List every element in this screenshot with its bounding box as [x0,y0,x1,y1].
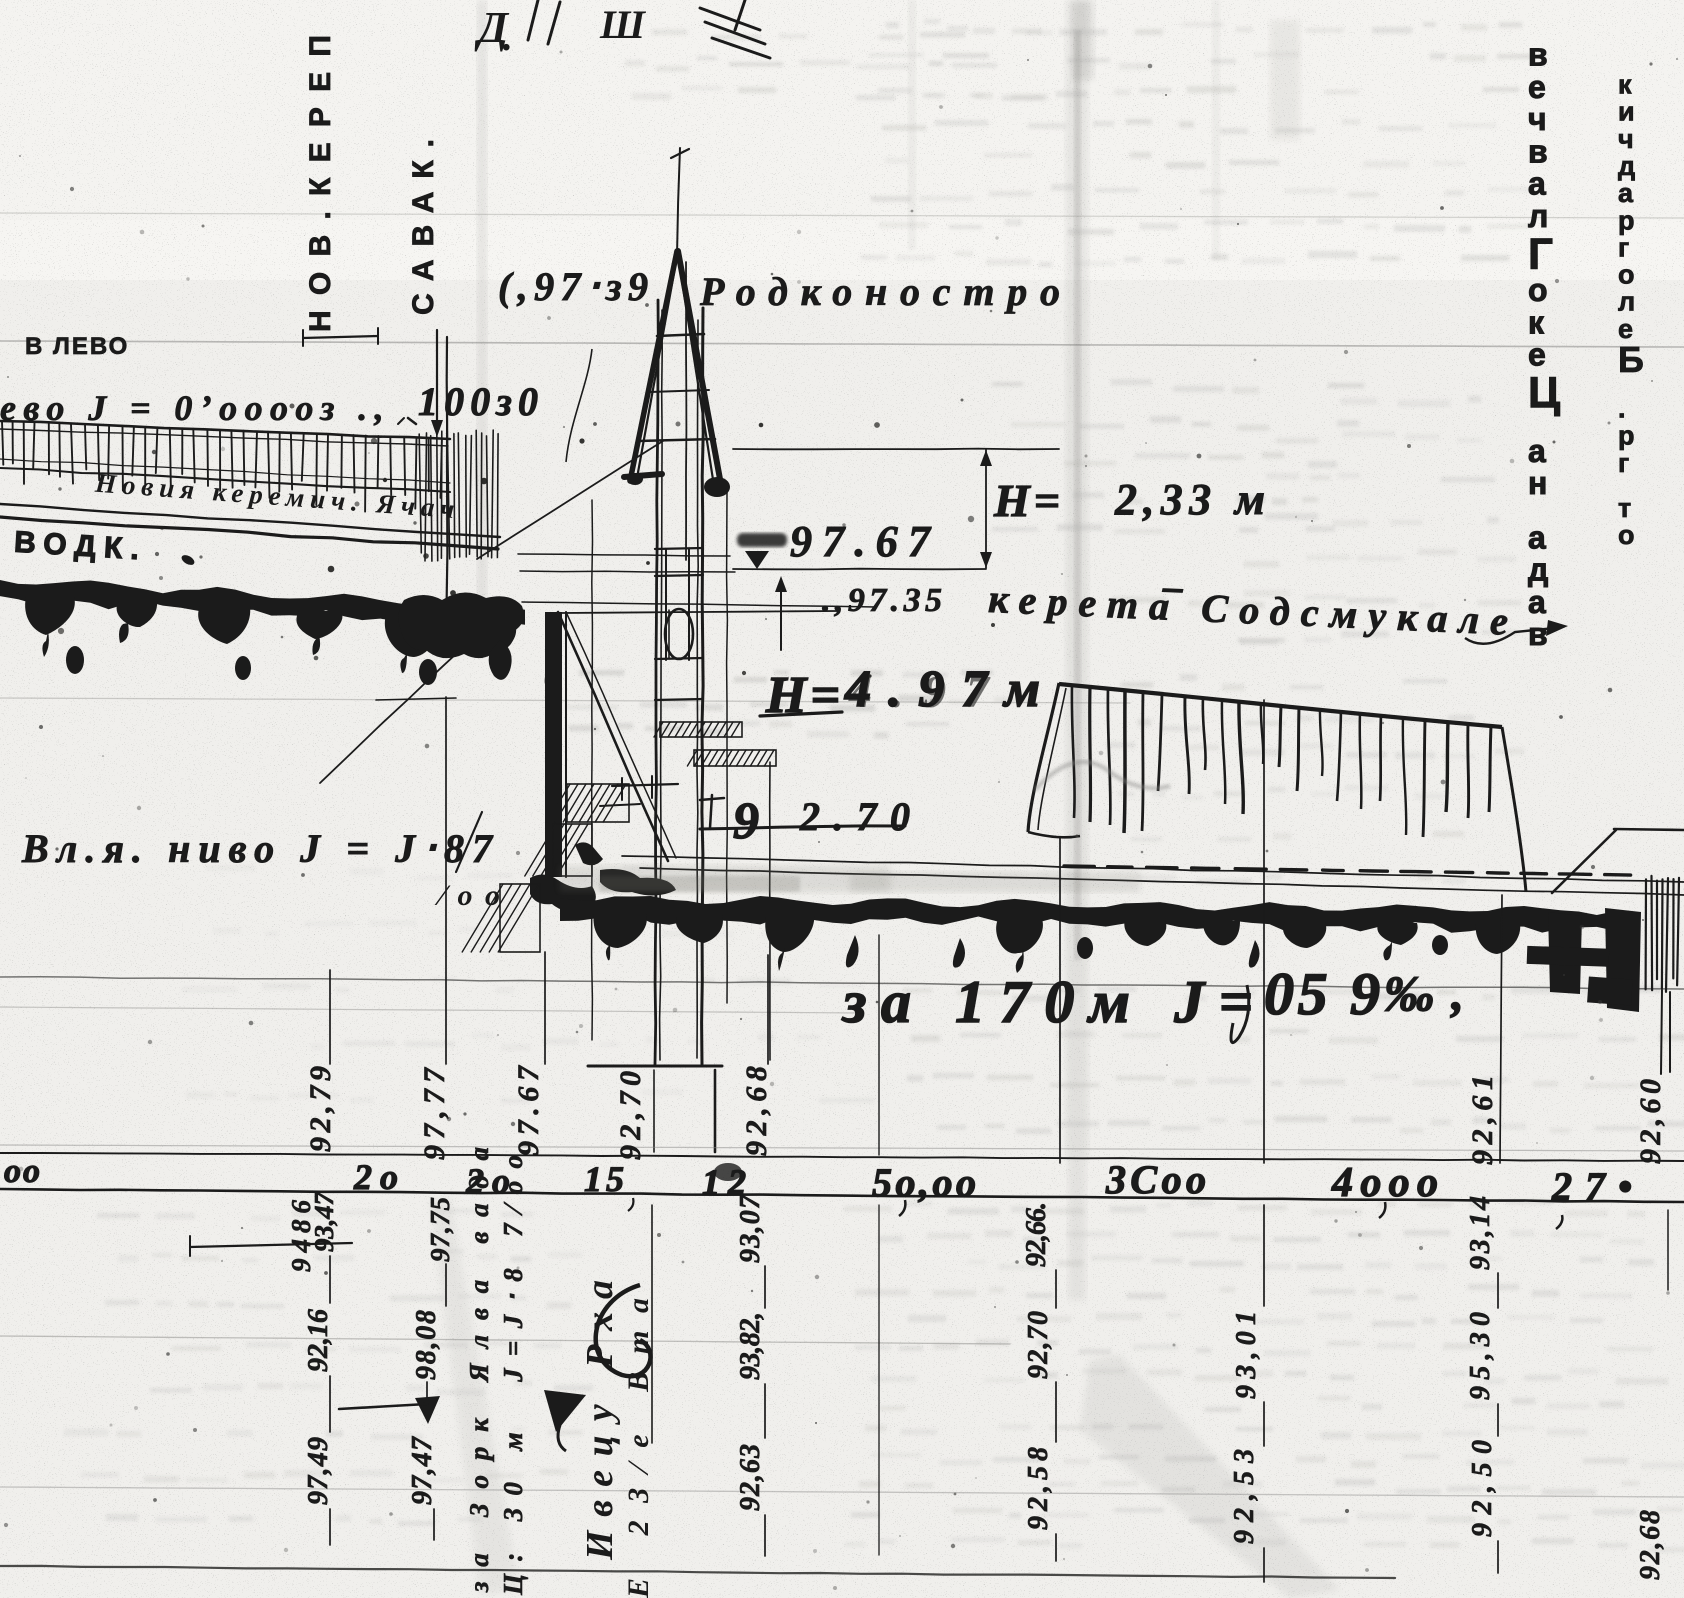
svg-text:93,82,: 93,82, [735,1312,766,1380]
svg-text:в: в [1528,133,1548,169]
svg-text:92,68: 92,68 [740,1066,773,1156]
svg-text:Ц: Ц [1528,368,1560,417]
svg-text:92,70: 92,70 [1023,1311,1054,1379]
svg-text:д: д [1618,151,1635,181]
svg-text:97,75: 97,75 [425,1197,455,1262]
svg-text:2,33 м: 2,33 м [1114,475,1265,524]
svg-text:93,01: 93,01 [1231,1311,1262,1399]
svg-text:НОВ.КЕРЕП: НОВ.КЕРЕП [304,32,337,332]
svg-text:о: о [1618,520,1635,550]
svg-text:В ЛЕВО: В ЛЕВО [25,333,129,360]
svg-text:к: к [1618,70,1632,100]
svg-text:97,47: 97,47 [407,1436,438,1505]
svg-text:92,16: 92,16 [303,1309,334,1372]
svg-text:Н=: Н= [993,475,1060,526]
svg-text:93,07: 93,07 [735,1194,766,1263]
svg-text:о: о [1618,260,1635,290]
svg-text:92,79: 92,79 [304,1066,337,1152]
svg-text:98,08: 98,08 [411,1310,442,1380]
svg-text:100з0: 100з0 [418,379,538,424]
svg-text:в: в [1528,37,1548,73]
svg-text:92,61: 92,61 [1466,1075,1499,1165]
svg-text:к: к [1528,304,1545,340]
svg-text:т: т [1618,493,1631,523]
svg-text:Д̣: Д̣ [474,3,510,52]
svg-text:д: д [1528,552,1548,588]
svg-text:92,58: 92,58 [1023,1447,1054,1530]
svg-text:а: а [1618,178,1634,208]
svg-text:а: а [1528,166,1546,202]
svg-text:л: л [1618,287,1635,317]
svg-text:л: л [1528,198,1548,234]
svg-text:97.67: 97.67 [790,517,932,566]
svg-text:‰,: ‰, [1384,965,1464,1021]
svg-text:е: е [1528,69,1546,105]
svg-text:Е 23⁄е Вта: Е 23⁄е Вта [622,1298,655,1598]
svg-text:3Соо: 3Соо [1105,1157,1206,1202]
svg-text:н: н [1528,465,1547,501]
svg-text:а: а [1528,584,1546,620]
svg-text:95,30: 95,30 [1465,1312,1496,1400]
svg-text:р: р [1618,421,1635,451]
svg-text:в: в [1528,616,1548,652]
svg-text:г: г [1618,232,1629,262]
svg-text:за 170м J=: за 170м J= [841,969,1253,1035]
svg-text:и: и [1618,97,1635,127]
svg-text:92,66.: 92,66. [1021,1202,1052,1267]
svg-text:9: 9 [733,793,759,850]
svg-text:92,63: 92,63 [735,1444,766,1511]
svg-text:р: р [1618,205,1635,235]
svg-text:27•: 27• [1551,1164,1632,1209]
svg-text:97,77: 97,77 [418,1067,451,1160]
svg-text:ч: ч [1618,124,1634,154]
svg-text:Ш: Ш [599,2,647,47]
svg-text:92,60: 92,60 [1634,1079,1667,1164]
svg-text:е: е [1528,337,1546,373]
svg-text:а: а [1528,433,1546,469]
svg-text:г: г [1618,448,1629,478]
svg-text:93,14: 93,14 [1465,1196,1496,1270]
svg-text:05 9: 05 9 [1264,961,1380,1027]
svg-text:5о,оо: 5о,оо [872,1160,976,1205]
svg-text:92,70: 92,70 [614,1071,647,1160]
svg-text:а: а [1528,519,1546,555]
svg-text:92,68: 92,68 [1635,1510,1666,1580]
svg-text:.: . [1618,394,1626,424]
svg-text:Вл.я. ниво Ј = Ј‧87: Вл.я. ниво Ј = Ј‧87 [21,826,494,871]
svg-text:97,49: 97,49 [303,1437,334,1505]
svg-text:ч: ч [1528,101,1547,137]
svg-text:97.67: 97.67 [512,1065,545,1156]
svg-text:о: о [1528,272,1548,308]
svg-text:⁄оо: ⁄оо [434,879,500,912]
svg-text:Б: Б [1618,339,1644,380]
